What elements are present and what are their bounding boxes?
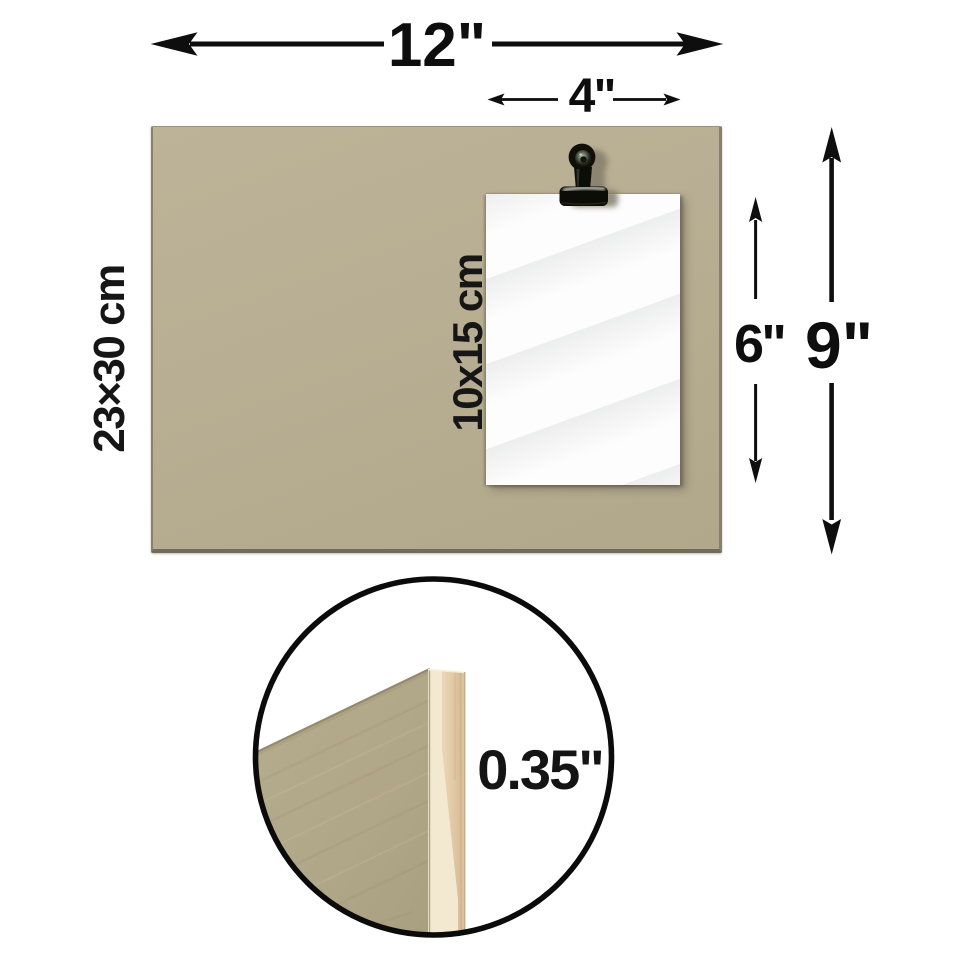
svg-text:9": 9" (805, 308, 873, 382)
svg-text:0.35": 0.35" (477, 738, 603, 801)
svg-text:": " (594, 70, 617, 120)
svg-text:4: 4 (569, 70, 596, 120)
svg-text:6: 6 (734, 314, 764, 374)
svg-text:": " (761, 314, 787, 374)
